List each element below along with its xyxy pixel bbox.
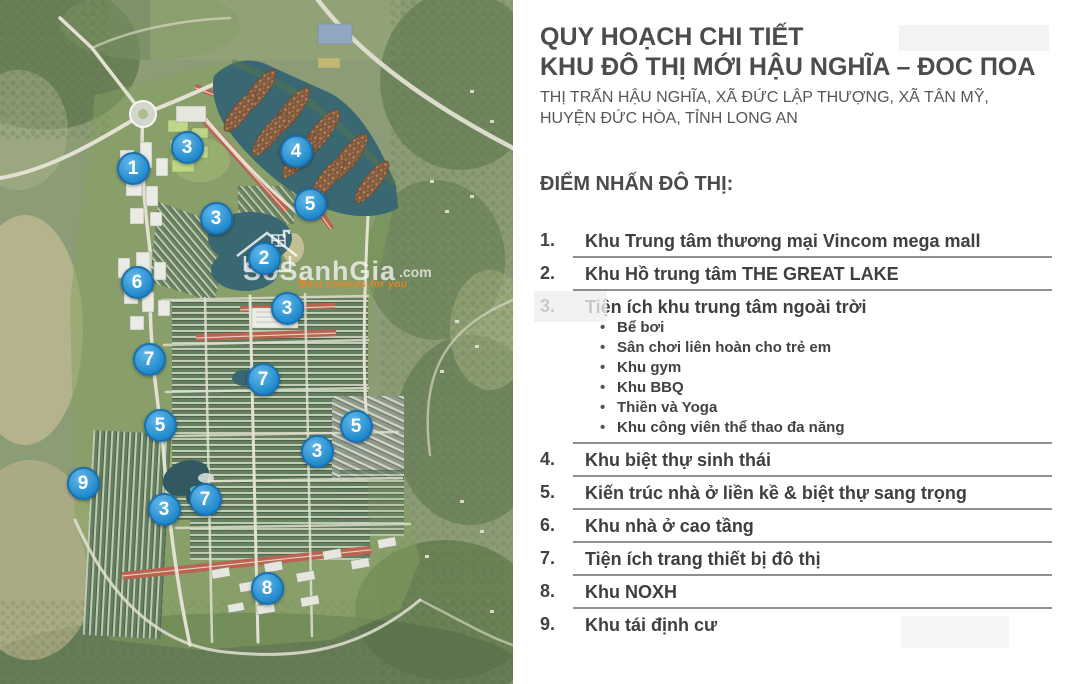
brochure-slide: SoSanhGia .com Best choices for you 1345… <box>0 0 1080 684</box>
map-marker-8: 8 <box>251 572 284 605</box>
sub-item: •Sân chơi liên hoàn cho trẻ em <box>585 338 1052 358</box>
list-item: 3. Tiện ích khu trung tâm ngoài trời •Bể… <box>540 291 1052 444</box>
list-item: 4. Khu biệt thự sinh thái <box>540 444 1052 477</box>
item-number: 1. <box>540 225 573 258</box>
item-number: 4. <box>540 444 573 477</box>
sub-item: •Khu BBQ <box>585 378 1052 398</box>
item-label: Khu NOXH <box>585 581 1052 603</box>
map-marker-5: 5 <box>144 409 177 442</box>
sub-item: •Bể bơi <box>585 318 1052 338</box>
map-marker-6: 6 <box>121 266 154 299</box>
map-marker-5: 5 <box>294 188 327 221</box>
bullet-icon: • <box>600 358 617 378</box>
section-heading: ĐIỂM NHẤN ĐÔ THỊ: <box>540 173 1052 196</box>
map-marker-7: 7 <box>189 483 222 516</box>
sub-item: •Thiền và Yoga <box>585 398 1052 418</box>
item-label: Khu Hồ trung tâm THE GREAT LAKE <box>585 263 1052 285</box>
legend-panel: QUY HOẠCH CHI TIẾT KHU ĐÔ THỊ MỚI HẬU NG… <box>513 0 1080 684</box>
list-item: 8. Khu NOXH <box>540 576 1052 609</box>
sub-item: •Khu công viên thể thao đa năng <box>585 418 1052 438</box>
map-marker-7: 7 <box>133 343 166 376</box>
erased-watermark-patch <box>901 616 1009 648</box>
map-marker-4: 4 <box>280 135 313 168</box>
bullet-icon: • <box>600 338 617 358</box>
map-markers: 13453263775539738 <box>0 0 513 684</box>
erased-watermark-patch <box>534 291 607 322</box>
erased-watermark-patch <box>899 25 1049 51</box>
map-marker-3: 3 <box>200 202 233 235</box>
sub-item: •Khu gym <box>585 358 1052 378</box>
item-label: Khu nhà ở cao tầng <box>585 515 1052 537</box>
map-marker-3: 3 <box>148 493 181 526</box>
item-label: Kiến trúc nhà ở liền kề & biệt thự sang … <box>585 482 1052 504</box>
item-number: 2. <box>540 258 573 291</box>
map-marker-7: 7 <box>247 363 280 396</box>
item-number: 8. <box>540 576 573 609</box>
list-item: 5. Kiến trúc nhà ở liền kề & biệt thự sa… <box>540 477 1052 510</box>
bullet-icon: • <box>600 378 617 398</box>
list-item: 1. Khu Trung tâm thương mại Vincom mega … <box>540 225 1052 258</box>
list-item: 6. Khu nhà ở cao tầng <box>540 510 1052 543</box>
subtitle-line1: THỊ TRẤN HẬU NGHĨA, XÃ ĐỨC LẬP THƯỢNG, X… <box>540 87 1052 108</box>
subtitle-line2: HUYỆN ĐỨC HÒA, TỈNH LONG AN <box>540 108 1052 129</box>
highlight-list: 1. Khu Trung tâm thương mại Vincom mega … <box>540 225 1052 640</box>
map-marker-1: 1 <box>117 152 150 185</box>
map-marker-5: 5 <box>340 410 373 443</box>
item-label: Tiện ích khu trung tâm ngoài trời <box>585 296 1052 318</box>
list-item: 2. Khu Hồ trung tâm THE GREAT LAKE <box>540 258 1052 291</box>
bullet-icon: • <box>600 418 617 438</box>
map-marker-3: 3 <box>301 435 334 468</box>
item-label: Khu Trung tâm thương mại Vincom mega mal… <box>585 230 1052 252</box>
item-label: Khu biệt thự sinh thái <box>585 449 1052 471</box>
map-marker-9: 9 <box>67 467 100 500</box>
masterplan-map: SoSanhGia .com Best choices for you 1345… <box>0 0 513 684</box>
item-number: 9. <box>540 609 573 640</box>
item-number: 6. <box>540 510 573 543</box>
item-number: 5. <box>540 477 573 510</box>
bullet-icon: • <box>600 398 617 418</box>
map-marker-3: 3 <box>271 292 304 325</box>
page-title-line2: KHU ĐÔ THỊ MỚI HẬU NGHĨA – ĐOC ΠOA <box>540 52 1052 82</box>
list-item: 7. Tiện ích trang thiết bị đô thị <box>540 543 1052 576</box>
map-marker-2: 2 <box>248 242 281 275</box>
map-marker-3: 3 <box>171 131 204 164</box>
item-label: Tiện ích trang thiết bị đô thị <box>585 548 1052 570</box>
item-number: 7. <box>540 543 573 576</box>
